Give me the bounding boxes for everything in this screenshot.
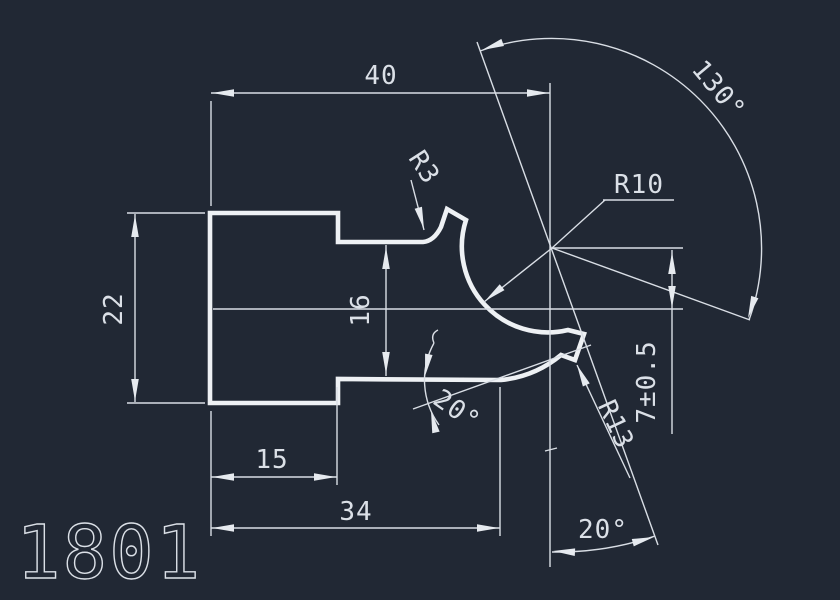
dim-text-20-axis: 20° (578, 515, 628, 545)
dim-text-34: 34 (339, 497, 372, 527)
dim-text-15: 15 (255, 445, 288, 475)
drawing-canvas: 40 22 16 7±0.5 R10 R3 R13 130° 20° 20° 1… (0, 0, 840, 600)
part-number-text: 1801 (16, 510, 202, 596)
dim-text-r10: R10 (614, 170, 664, 200)
dim-text-22: 22 (99, 292, 129, 325)
cad-drawing: 40 22 16 7±0.5 R10 R3 R13 130° 20° 20° 1… (0, 0, 840, 600)
dim-text-40: 40 (364, 61, 397, 91)
dim-text-16: 16 (346, 293, 376, 326)
dim-text-7: 7±0.5 (632, 340, 662, 423)
